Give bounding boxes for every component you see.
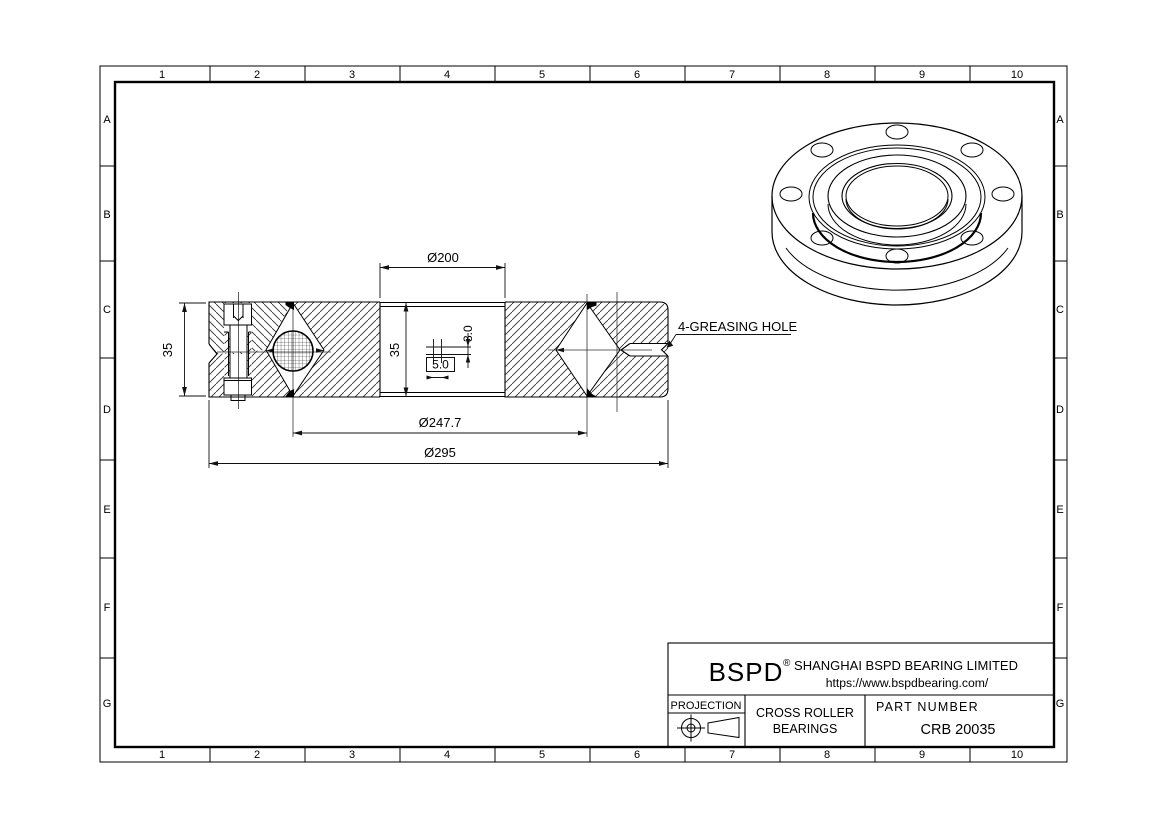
grid-col-label: 7	[729, 749, 735, 761]
projection-symbol-icon	[677, 715, 739, 742]
grid-col-label: 2	[254, 69, 260, 81]
registered-mark: ®	[783, 658, 791, 669]
dim-width-bore: 35	[387, 343, 402, 357]
grid-col-label: 7	[729, 69, 735, 81]
dim-outer-diameter: Ø295	[424, 445, 456, 460]
engineering-drawing: 1 2 3 4 5 6 7 8 9 10 1 2 3 4 5 6 7 8 9 1…	[0, 0, 1170, 827]
grid-col-label: 9	[919, 69, 925, 81]
grid-col-label: 8	[824, 749, 830, 761]
grid-col-label: 5	[539, 69, 545, 81]
greasing-hole-label: 4-GREASING HOLE	[678, 319, 798, 334]
product-name-line1: CROSS ROLLER	[756, 706, 854, 720]
dim-grease-hole-height: 3.0	[461, 325, 475, 342]
grid-row-label: E	[103, 504, 110, 516]
grid-col-label: 5	[539, 749, 545, 761]
grid-row-label: A	[103, 114, 111, 126]
dim-roller-pitch-diameter: Ø247.7	[419, 415, 462, 430]
grid-col-label: 3	[349, 69, 355, 81]
grid-col-label: 4	[444, 749, 450, 761]
grid-row-label: B	[1056, 209, 1063, 221]
grid-col-label: 6	[634, 69, 640, 81]
grid-col-label: 1	[159, 69, 165, 81]
grid-col-label: 4	[444, 69, 450, 81]
isometric-view	[772, 123, 1022, 305]
grid-col-label: 10	[1011, 69, 1023, 81]
dim-width-left: 35	[160, 343, 175, 357]
part-number-value: CRB 20035	[921, 722, 996, 738]
grid-row-label: F	[1057, 602, 1064, 614]
projection-label: PROJECTION	[671, 700, 742, 712]
drawing-sheet: 1 2 3 4 5 6 7 8 9 10 1 2 3 4 5 6 7 8 9 1…	[0, 0, 1170, 827]
grid-col-label: 3	[349, 749, 355, 761]
grid-col-label: 6	[634, 749, 640, 761]
roller	[273, 331, 313, 371]
product-name-line2: BEARINGS	[773, 722, 838, 736]
dim-grease-hole-width: 5.0	[432, 358, 449, 372]
grid-row-label: A	[1056, 114, 1064, 126]
grid-row-label: G	[1056, 698, 1065, 710]
grid-col-label: 10	[1011, 749, 1023, 761]
grid-row-label: C	[1056, 304, 1064, 316]
grid-row-label: F	[104, 602, 111, 614]
grid-row-label: D	[103, 404, 111, 416]
grid-row-label: G	[103, 698, 112, 710]
bolt-holes	[780, 125, 1014, 263]
dim-bore-diameter: Ø200	[427, 250, 459, 265]
grid-col-label: 2	[254, 749, 260, 761]
company-website: https://www.bspdbearing.com/	[826, 676, 989, 690]
grid-col-label: 9	[919, 749, 925, 761]
brand-logo: BSPD	[709, 657, 784, 687]
grid-col-label: 1	[159, 749, 165, 761]
grid-row-label: B	[103, 209, 110, 221]
grid-row-label: E	[1056, 504, 1063, 516]
part-number-label: PART NUMBER	[876, 700, 979, 714]
grid-row-label: C	[103, 304, 111, 316]
grid-col-label: 8	[824, 69, 830, 81]
company-name: SHANGHAI BSPD BEARING LIMITED	[794, 658, 1018, 673]
grid-row-label: D	[1056, 404, 1064, 416]
title-block: BSPD ® SHANGHAI BSPD BEARING LIMITED htt…	[668, 643, 1054, 747]
